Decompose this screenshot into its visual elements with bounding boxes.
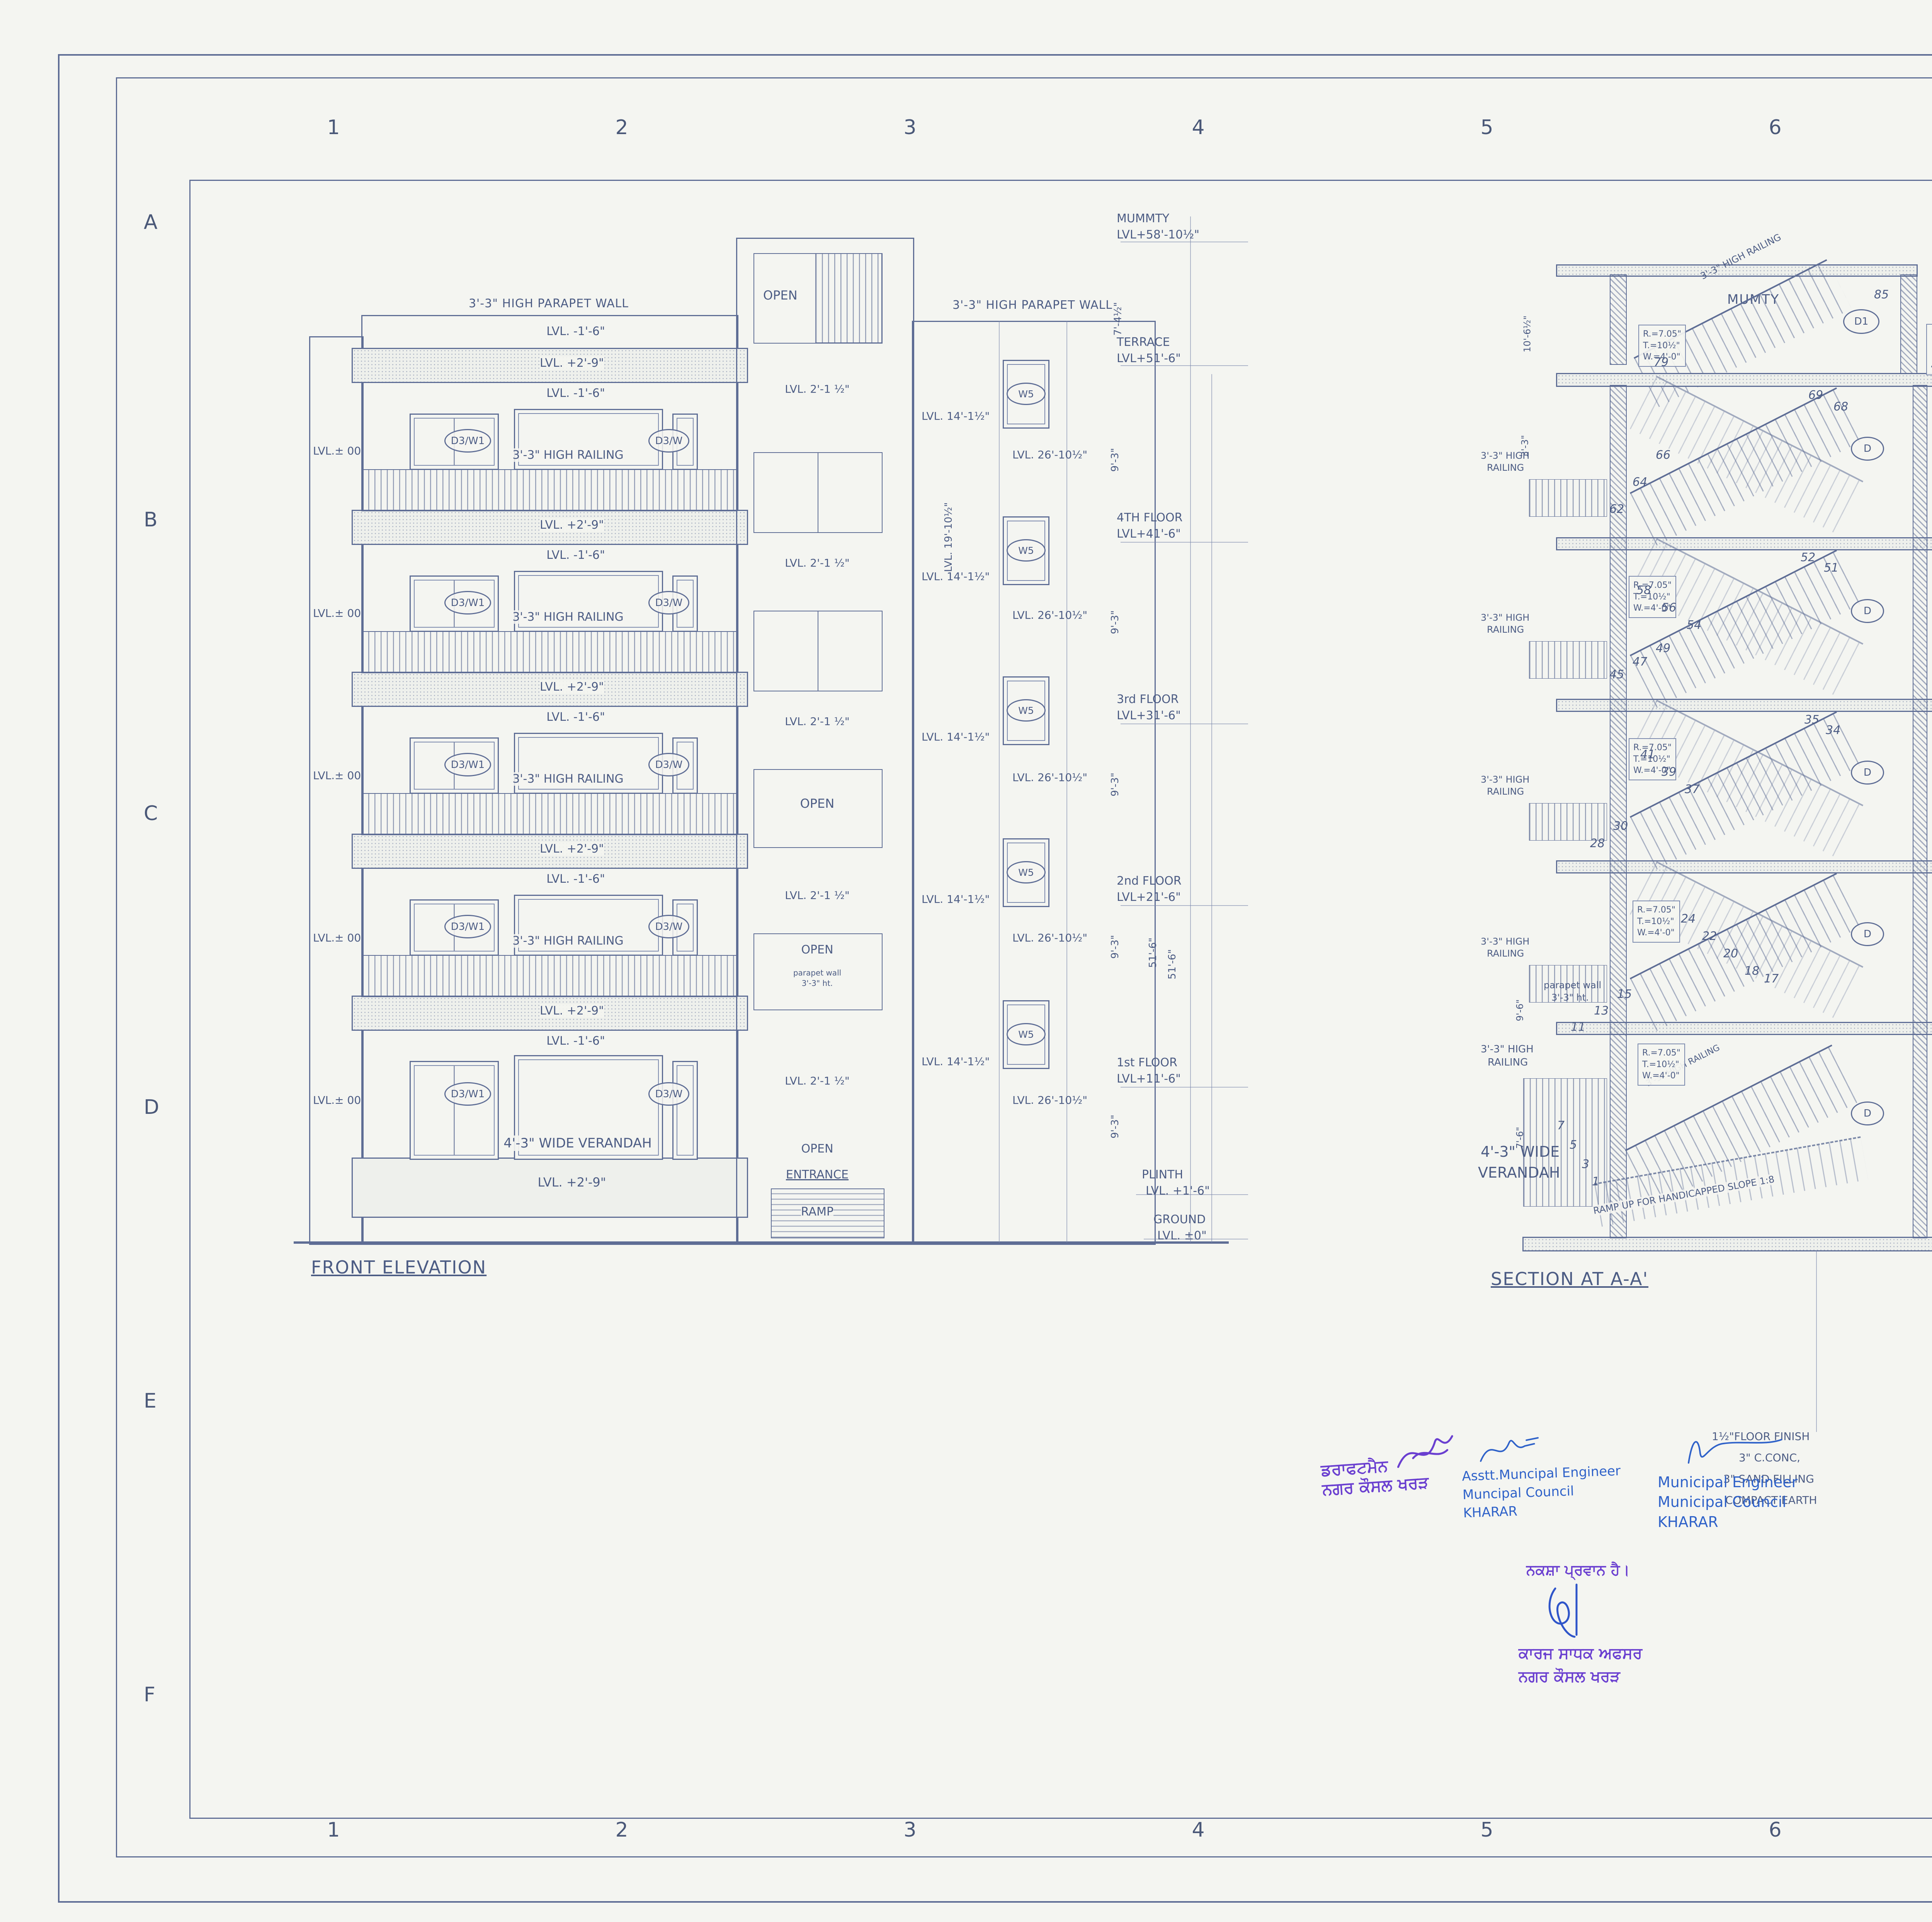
verandah-door-right xyxy=(672,1061,698,1160)
step-number: 66 xyxy=(1656,448,1670,462)
slab-lvl-label: LVL. +2'-9" xyxy=(540,842,604,856)
level-2nd-1: 2nd FLOOR xyxy=(1117,874,1182,888)
step-number: 30 xyxy=(1613,819,1628,833)
window-tag-d3w: D3/W xyxy=(648,591,689,615)
stair-note-t: T.=10½" xyxy=(1643,340,1681,352)
ws-lvl14-label: LVL. 14'-1½" xyxy=(922,570,990,583)
ws-lvl14-label: LVL. 14'-1½" xyxy=(922,1055,990,1068)
section-railing-label-5: 3'-3" HIGH xyxy=(1481,1044,1534,1055)
grid-number-bottom-2: 2 xyxy=(615,1818,628,1842)
tower-window xyxy=(753,611,883,691)
step-number: 39 xyxy=(1662,765,1676,779)
stair-note-w: W.=4'-0" xyxy=(1637,927,1675,939)
step-number: 35 xyxy=(1804,713,1819,727)
dim-line xyxy=(1190,216,1191,1243)
ws-parapet-label: 3'-3" HIGH PARAPET WALL xyxy=(952,298,1112,312)
level-plinth-1: PLINTH xyxy=(1142,1168,1183,1181)
ws-window-tag: W5 xyxy=(1007,861,1046,884)
window-tag-d3w1: D3/W1 xyxy=(444,915,491,938)
step-number: 1 xyxy=(1592,1175,1599,1188)
ground-note-leader xyxy=(1816,1250,1817,1432)
tower-open-label: OPEN xyxy=(801,1142,833,1156)
tower-lvl-label: LVL. 2'-1 ½" xyxy=(785,889,849,902)
level-tick xyxy=(1121,905,1248,906)
grid-letter-left-b: B xyxy=(144,508,158,531)
level-3rd-1: 3rd FLOOR xyxy=(1117,693,1179,706)
ws-lvl14-label: LVL. 14'-1½" xyxy=(922,730,990,743)
officer-stamp-line2: ਨਗਰ ਕੌਸਲ ਖਰੜ xyxy=(1519,1668,1620,1685)
section-left-railing xyxy=(1529,641,1607,679)
door-tag-d: D xyxy=(1851,599,1884,623)
stair-note-r: R.=7.05" xyxy=(1637,904,1675,916)
terrace-note: 1 1/2" TILE TERRACING 3" MUD PHUSKA LAID… xyxy=(1926,324,1932,375)
level-1st-2: LVL+11'-6" xyxy=(1117,1072,1181,1086)
level-tick xyxy=(1121,242,1248,242)
section-verandah-label-1: 4'-3" WIDE xyxy=(1481,1143,1560,1160)
dim-9-6: 9'-6" xyxy=(1514,999,1525,1021)
section-title: SECTION AT A-A' xyxy=(1491,1268,1648,1289)
tower-lvl-label: LVL. 2'-1 ½" xyxy=(785,557,849,569)
stairwell-parapet-note-1: parapet wall xyxy=(1544,980,1601,991)
grid-letter-left-c: C xyxy=(144,802,158,825)
door-tag-d: D xyxy=(1851,1101,1884,1125)
tower-stair-hatch xyxy=(815,253,882,343)
tower-lvl-label: LVL. 2'-1 ½" xyxy=(785,1074,849,1087)
ws-lvl26-label: LVL. 26'-10½" xyxy=(1012,931,1087,944)
stair-note-r: R.=7.05" xyxy=(1643,329,1681,340)
asst-engineer-signature xyxy=(1476,1431,1562,1469)
level-tick xyxy=(1121,724,1248,724)
drawing-sheet: 1 2 3 4 5 6 7 8 1 2 3 4 5 6 7 8 A B C D … xyxy=(0,0,1932,1922)
step-number: 79 xyxy=(1654,356,1668,369)
balcony-railing xyxy=(361,631,738,673)
step-number: 68 xyxy=(1833,400,1848,414)
municipal-engineer-signature xyxy=(1681,1430,1789,1469)
grid-number-top-6: 6 xyxy=(1769,116,1781,139)
level-terrace-2: LVL+51'-6" xyxy=(1117,352,1181,365)
door-tag-d: D xyxy=(1851,761,1884,785)
level-3rd-2: LVL+31'-6" xyxy=(1117,709,1181,722)
ws-lvl14-label: LVL. 14'-1½" xyxy=(922,410,990,422)
step-number: 54 xyxy=(1687,618,1701,632)
step-number: 47 xyxy=(1633,655,1647,669)
step-number: 51 xyxy=(1824,561,1838,575)
dim-9-3: 9'-3" xyxy=(1109,1115,1121,1139)
plinth-lvl-label: LVL. +2'-9" xyxy=(538,1175,606,1190)
grid-number-bottom-3: 3 xyxy=(903,1818,916,1842)
level-tick xyxy=(1121,365,1248,366)
step-number: 3 xyxy=(1582,1158,1589,1171)
door-tag-d: D xyxy=(1851,437,1884,461)
mumty-right-wall xyxy=(1900,274,1917,376)
dim-9-3: 9'-3" xyxy=(1109,935,1121,959)
ramp-label: RAMP xyxy=(801,1205,833,1219)
step-number: 69 xyxy=(1808,388,1823,402)
step-number: 41 xyxy=(1640,748,1655,761)
level-ground-1: GROUND xyxy=(1153,1213,1206,1226)
step-number: 45 xyxy=(1609,668,1624,681)
stair-note: R.=7.05" T.=10½" W.=4'-0" xyxy=(1633,901,1680,943)
step-number: 34 xyxy=(1826,724,1840,737)
level-tick xyxy=(1121,1087,1248,1088)
window-tag-d3w1: D3/W1 xyxy=(444,429,491,453)
lvl-00-label: LVL.± 00 xyxy=(313,444,361,457)
section-railing-label-2b: RAILING xyxy=(1487,624,1524,635)
section-left-railing xyxy=(1529,803,1607,841)
level-4th-1: 4TH FLOOR xyxy=(1117,511,1182,524)
step-number: 62 xyxy=(1609,502,1624,516)
railing-label: 3'-3" HIGH RAILING xyxy=(512,772,624,786)
grid-number-bottom-1: 1 xyxy=(327,1818,340,1842)
ws-lvl26-label: LVL. 26'-10½" xyxy=(1012,609,1087,621)
slab-lvl-label: LVL. +2'-9" xyxy=(540,518,604,532)
railing-label: 3'-3" HIGH RAILING xyxy=(512,610,624,624)
section-railing-label-2: 3'-3" HIGH xyxy=(1481,612,1529,623)
grid-number-top-2: 2 xyxy=(615,116,628,139)
grid-letter-left-a: A xyxy=(144,211,158,234)
balcony-railing xyxy=(361,793,738,835)
ws-window-tag: W5 xyxy=(1007,539,1046,562)
level-ground-2: LVL. ±0" xyxy=(1157,1229,1207,1243)
tower-lvl-label: LVL. 2'-1 ½" xyxy=(785,715,849,728)
dim-10-6: 10'-6½" xyxy=(1522,315,1533,352)
tower-window xyxy=(753,452,883,533)
grid-number-top-3: 3 xyxy=(903,116,916,139)
dim-7-4: 7'-4½" xyxy=(1112,302,1124,336)
door-tag-d: D xyxy=(1851,922,1884,946)
ws-lvl14-label: LVL. 14'-1½" xyxy=(922,893,990,906)
municipal-engineer-stamp-line2: Municipal Council xyxy=(1658,1492,1798,1512)
step-number: 58 xyxy=(1636,584,1651,597)
ws-window-tag: W5 xyxy=(1007,1023,1046,1045)
grid-letter-left-d: D xyxy=(144,1096,159,1119)
mumty-left-wall xyxy=(1610,274,1627,365)
slab-lvl-label: LVL. +2'-9" xyxy=(540,356,604,370)
step-number: 18 xyxy=(1745,964,1759,978)
grid-number-top-1: 1 xyxy=(327,116,340,139)
lvl-00-label: LVL.± 00 xyxy=(313,931,361,944)
window-tag-d3w1: D3/W1 xyxy=(444,591,491,615)
officer-stamp-line1: ਕਾਰਜ ਸਾਧਕ ਅਫਸਰ xyxy=(1519,1645,1642,1662)
slab-lvl-label: LVL. +2'-9" xyxy=(540,1004,604,1018)
level-mummty-2: LVL+58'-10½" xyxy=(1117,228,1199,242)
verandah-label: 4'-3" WIDE VERANDAH xyxy=(503,1135,652,1151)
grid-letter-left-e: E xyxy=(144,1389,156,1413)
balcony-railing xyxy=(361,469,738,511)
step-number: 49 xyxy=(1656,642,1670,655)
lvl-00-label: LVL.± 00 xyxy=(313,769,361,782)
section-railing-label-4b: RAILING xyxy=(1487,948,1524,959)
step-number: 85 xyxy=(1874,288,1889,301)
asst-engineer-stamp: Asstt.Muncipal Engineer Muncipal Council… xyxy=(1462,1462,1622,1523)
floor-lvl-label: LVL. -1'-6" xyxy=(546,872,605,886)
tower-open-label: OPEN xyxy=(801,943,833,957)
step-number: 22 xyxy=(1702,930,1717,943)
ws-lvl19-label: LVL. 19'-10½" xyxy=(943,502,954,572)
ws-lvl26-label: LVL. 26'-10½" xyxy=(1012,448,1087,461)
stair-note-w: W.=4'-0" xyxy=(1642,1070,1680,1082)
draftsman-stamp: ਡਰਾਫਟਮੈਨ ਨਗਰ ਕੌਸਲ ਖਰੜ xyxy=(1320,1453,1429,1499)
grid-number-top-4: 4 xyxy=(1192,116,1204,139)
section-railing-label-3: 3'-3" HIGH xyxy=(1481,774,1529,785)
dim-51-6: 51'-6" xyxy=(1147,938,1159,968)
level-tick xyxy=(1121,542,1248,543)
door-tag-d1: D1 xyxy=(1843,309,1879,334)
ws-window-tag: W5 xyxy=(1007,383,1046,405)
tower-lvl-label: LVL. 2'-1 ½" xyxy=(785,383,849,395)
approval-signature xyxy=(1540,1581,1617,1639)
municipal-engineer-stamp: Municipal Engineer Municipal Council KHA… xyxy=(1658,1473,1798,1532)
section-left-railing xyxy=(1529,479,1607,517)
floor-lvl-label: LVL. -1'-6" xyxy=(546,548,605,562)
window-tag-d3w1: D3/W1 xyxy=(444,753,491,776)
level-4th-2: LVL+41'-6" xyxy=(1117,527,1181,541)
stair-note-r: R.=7.05" xyxy=(1642,1047,1680,1059)
level-2nd-2: LVL+21'-6" xyxy=(1117,890,1181,904)
floor-lvl-label: LVL. -1'-6" xyxy=(546,386,605,400)
municipal-engineer-stamp-line1: Municipal Engineer xyxy=(1658,1473,1798,1492)
grid-number-top-5: 5 xyxy=(1480,116,1493,139)
lvl-00-label: LVL.± 00 xyxy=(313,1094,361,1107)
ws-window-tag: W5 xyxy=(1007,699,1046,722)
grid-letter-left-f: F xyxy=(144,1683,155,1706)
section-railing-label-1b: RAILING xyxy=(1487,462,1524,473)
window-tag-d3w1: D3/W1 xyxy=(444,1082,491,1106)
step-number: 37 xyxy=(1685,783,1699,796)
tower-open-label: OPEN xyxy=(800,796,835,811)
stair-note-t: T.=10½" xyxy=(1637,916,1675,928)
slab-lvl-label: LVL. +2'-9" xyxy=(540,680,604,694)
railing-label: 3'-3" HIGH RAILING xyxy=(512,448,624,462)
level-mummty-1: MUMMTY xyxy=(1117,212,1169,225)
stairwell-parapet-note-2: 3'-3" ht. xyxy=(1551,992,1589,1003)
floor-lvl-label: LVL. -1'-6" xyxy=(546,1034,605,1048)
step-number: 17 xyxy=(1764,972,1779,986)
window-tag-d3w: D3/W xyxy=(648,429,689,453)
dim-9-3: 9'-3" xyxy=(1109,610,1121,634)
dim-line xyxy=(1211,374,1212,1243)
front-elevation-title: FRONT ELEVATION xyxy=(311,1257,486,1278)
grid-number-bottom-5: 5 xyxy=(1480,1818,1493,1842)
draftsman-signature xyxy=(1388,1428,1461,1479)
step-number: 20 xyxy=(1723,947,1738,960)
dim-9-3: 9'-3" xyxy=(1109,773,1121,797)
verandah-door-left xyxy=(410,1061,499,1160)
tower-parapet-note-1: parapet wall xyxy=(793,968,841,977)
step-number: 24 xyxy=(1681,912,1696,926)
step-number: 64 xyxy=(1633,475,1647,489)
tower-open-label: OPEN xyxy=(763,288,798,303)
dim-51-6: 51'-6" xyxy=(1167,949,1178,979)
floor-lvl-label: LVL. -1'-6" xyxy=(546,710,605,724)
window-tag-d3w: D3/W xyxy=(648,753,689,776)
section-railing-label-5b: RAILING xyxy=(1488,1057,1528,1068)
step-number: 15 xyxy=(1617,987,1632,1001)
elevation-roof-lvl: LVL. -1'-6" xyxy=(546,325,605,338)
bedroom-wall xyxy=(1913,385,1927,1238)
section-railing-label-4: 3'-3" HIGH xyxy=(1481,936,1529,947)
grid-number-bottom-4: 4 xyxy=(1192,1818,1204,1842)
section-verandah-label-2: VERANDAH xyxy=(1478,1164,1560,1181)
dim-3-3: 3'-3" xyxy=(1519,435,1530,457)
grid-number-bottom-6: 6 xyxy=(1769,1818,1781,1842)
step-number: 28 xyxy=(1590,837,1605,850)
map-approved-stamp: ਨਕਸ਼ਾ ਪ੍ਰਵਾਨ ਹੈ। xyxy=(1526,1561,1630,1579)
ws-lvl26-label: LVL. 26'-10½" xyxy=(1012,771,1087,784)
municipal-engineer-stamp-line3: KHARAR xyxy=(1658,1512,1798,1532)
balcony-railing xyxy=(361,955,738,997)
elevation-left-wing xyxy=(309,336,364,1245)
ws-guide xyxy=(999,321,1000,1243)
railing-label: 3'-3" HIGH RAILING xyxy=(512,934,624,948)
step-number: 13 xyxy=(1594,1004,1609,1018)
ground-slab xyxy=(1522,1237,1932,1251)
entrance-label: ENTRANCE xyxy=(786,1168,849,1181)
level-plinth-2: LVL. +1'-6" xyxy=(1146,1184,1210,1198)
dim-9-3: 9'-3" xyxy=(1109,448,1121,472)
ws-lvl26-label: LVL. 26'-10½" xyxy=(1012,1094,1087,1107)
window-tag-d3w: D3/W xyxy=(648,915,689,938)
section-railing-label-3b: RAILING xyxy=(1487,786,1524,797)
window-tag-d3w: D3/W xyxy=(648,1082,689,1106)
step-number: 11 xyxy=(1571,1020,1585,1034)
step-number: 5 xyxy=(1570,1138,1577,1152)
step-number: 52 xyxy=(1801,551,1815,564)
level-1st-1: 1st FLOOR xyxy=(1117,1056,1177,1069)
level-terrace-1: TERRACE xyxy=(1117,335,1170,349)
step-number: 56 xyxy=(1662,601,1676,615)
lvl-00-label: LVL.± 00 xyxy=(313,607,361,620)
stair-note: R.=7.05" T.=10½" W.=4'-0" xyxy=(1638,1044,1685,1086)
elevation-parapet-label: 3'-3" HIGH PARAPET WALL xyxy=(469,297,629,310)
stair-note-t: T.=10½" xyxy=(1642,1059,1680,1071)
step-number: 7 xyxy=(1557,1119,1565,1132)
tower-parapet-note-2: 3'-3" ht. xyxy=(802,979,833,988)
